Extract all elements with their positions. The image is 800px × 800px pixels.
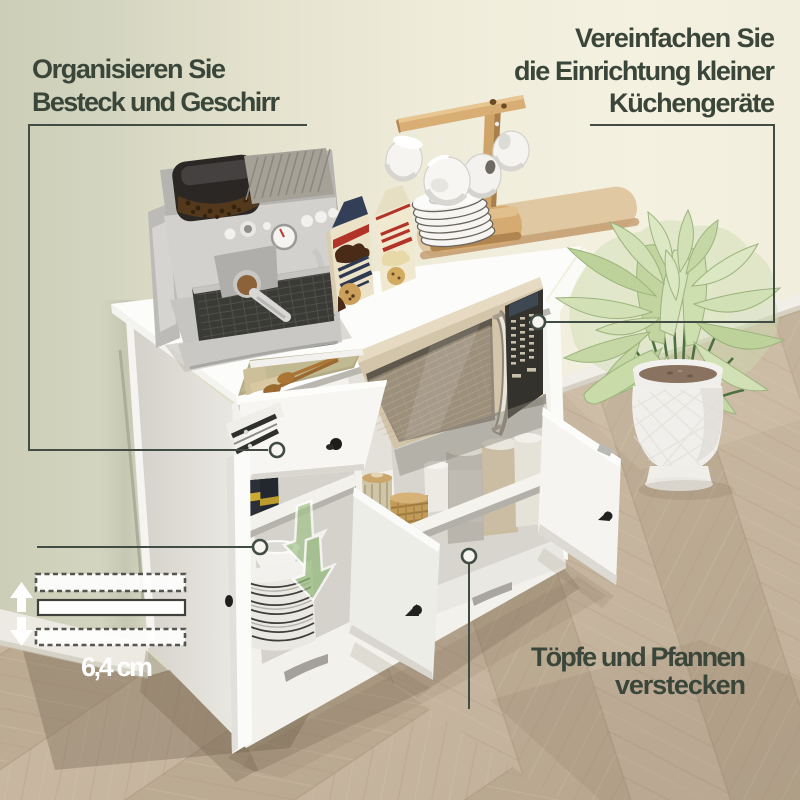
svg-text:verstecken: verstecken: [615, 670, 746, 700]
svg-text:Küchengeräte: Küchengeräte: [609, 88, 775, 118]
svg-text:Vereinfachen Sie: Vereinfachen Sie: [575, 23, 775, 53]
svg-text:Töpfe und Pfannen: Töpfe und Pfannen: [531, 642, 746, 672]
svg-text:die Einrichtung kleiner: die Einrichtung kleiner: [514, 56, 775, 86]
svg-text:Organisieren Sie: Organisieren Sie: [32, 54, 226, 84]
svg-text:6,4 cm: 6,4 cm: [81, 652, 153, 682]
svg-text:Besteck und Geschirr: Besteck und Geschirr: [32, 87, 280, 117]
